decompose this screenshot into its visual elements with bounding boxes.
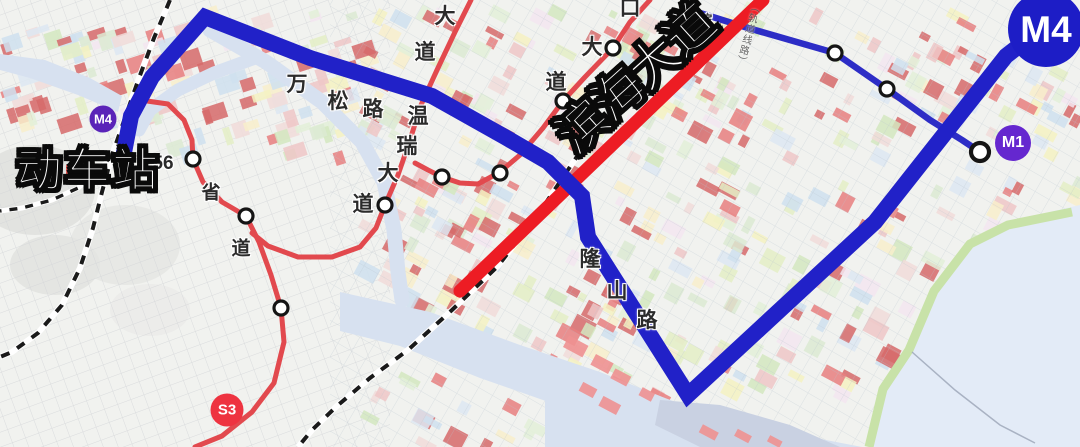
s3-line-badge: S3 bbox=[211, 394, 244, 427]
basemap-canvas bbox=[0, 0, 1080, 447]
m1-line-badge: M1 bbox=[995, 125, 1031, 161]
m4-line-badge-small: M4 bbox=[90, 106, 117, 133]
train-station-label: 动车站 bbox=[16, 134, 160, 200]
transit-map: 大 道 温 瑞 大 道 万 松 路 口 大 道 省 道 隆 山 路 56 滨 （… bbox=[0, 0, 1080, 447]
m1-terminus-station bbox=[971, 143, 989, 161]
